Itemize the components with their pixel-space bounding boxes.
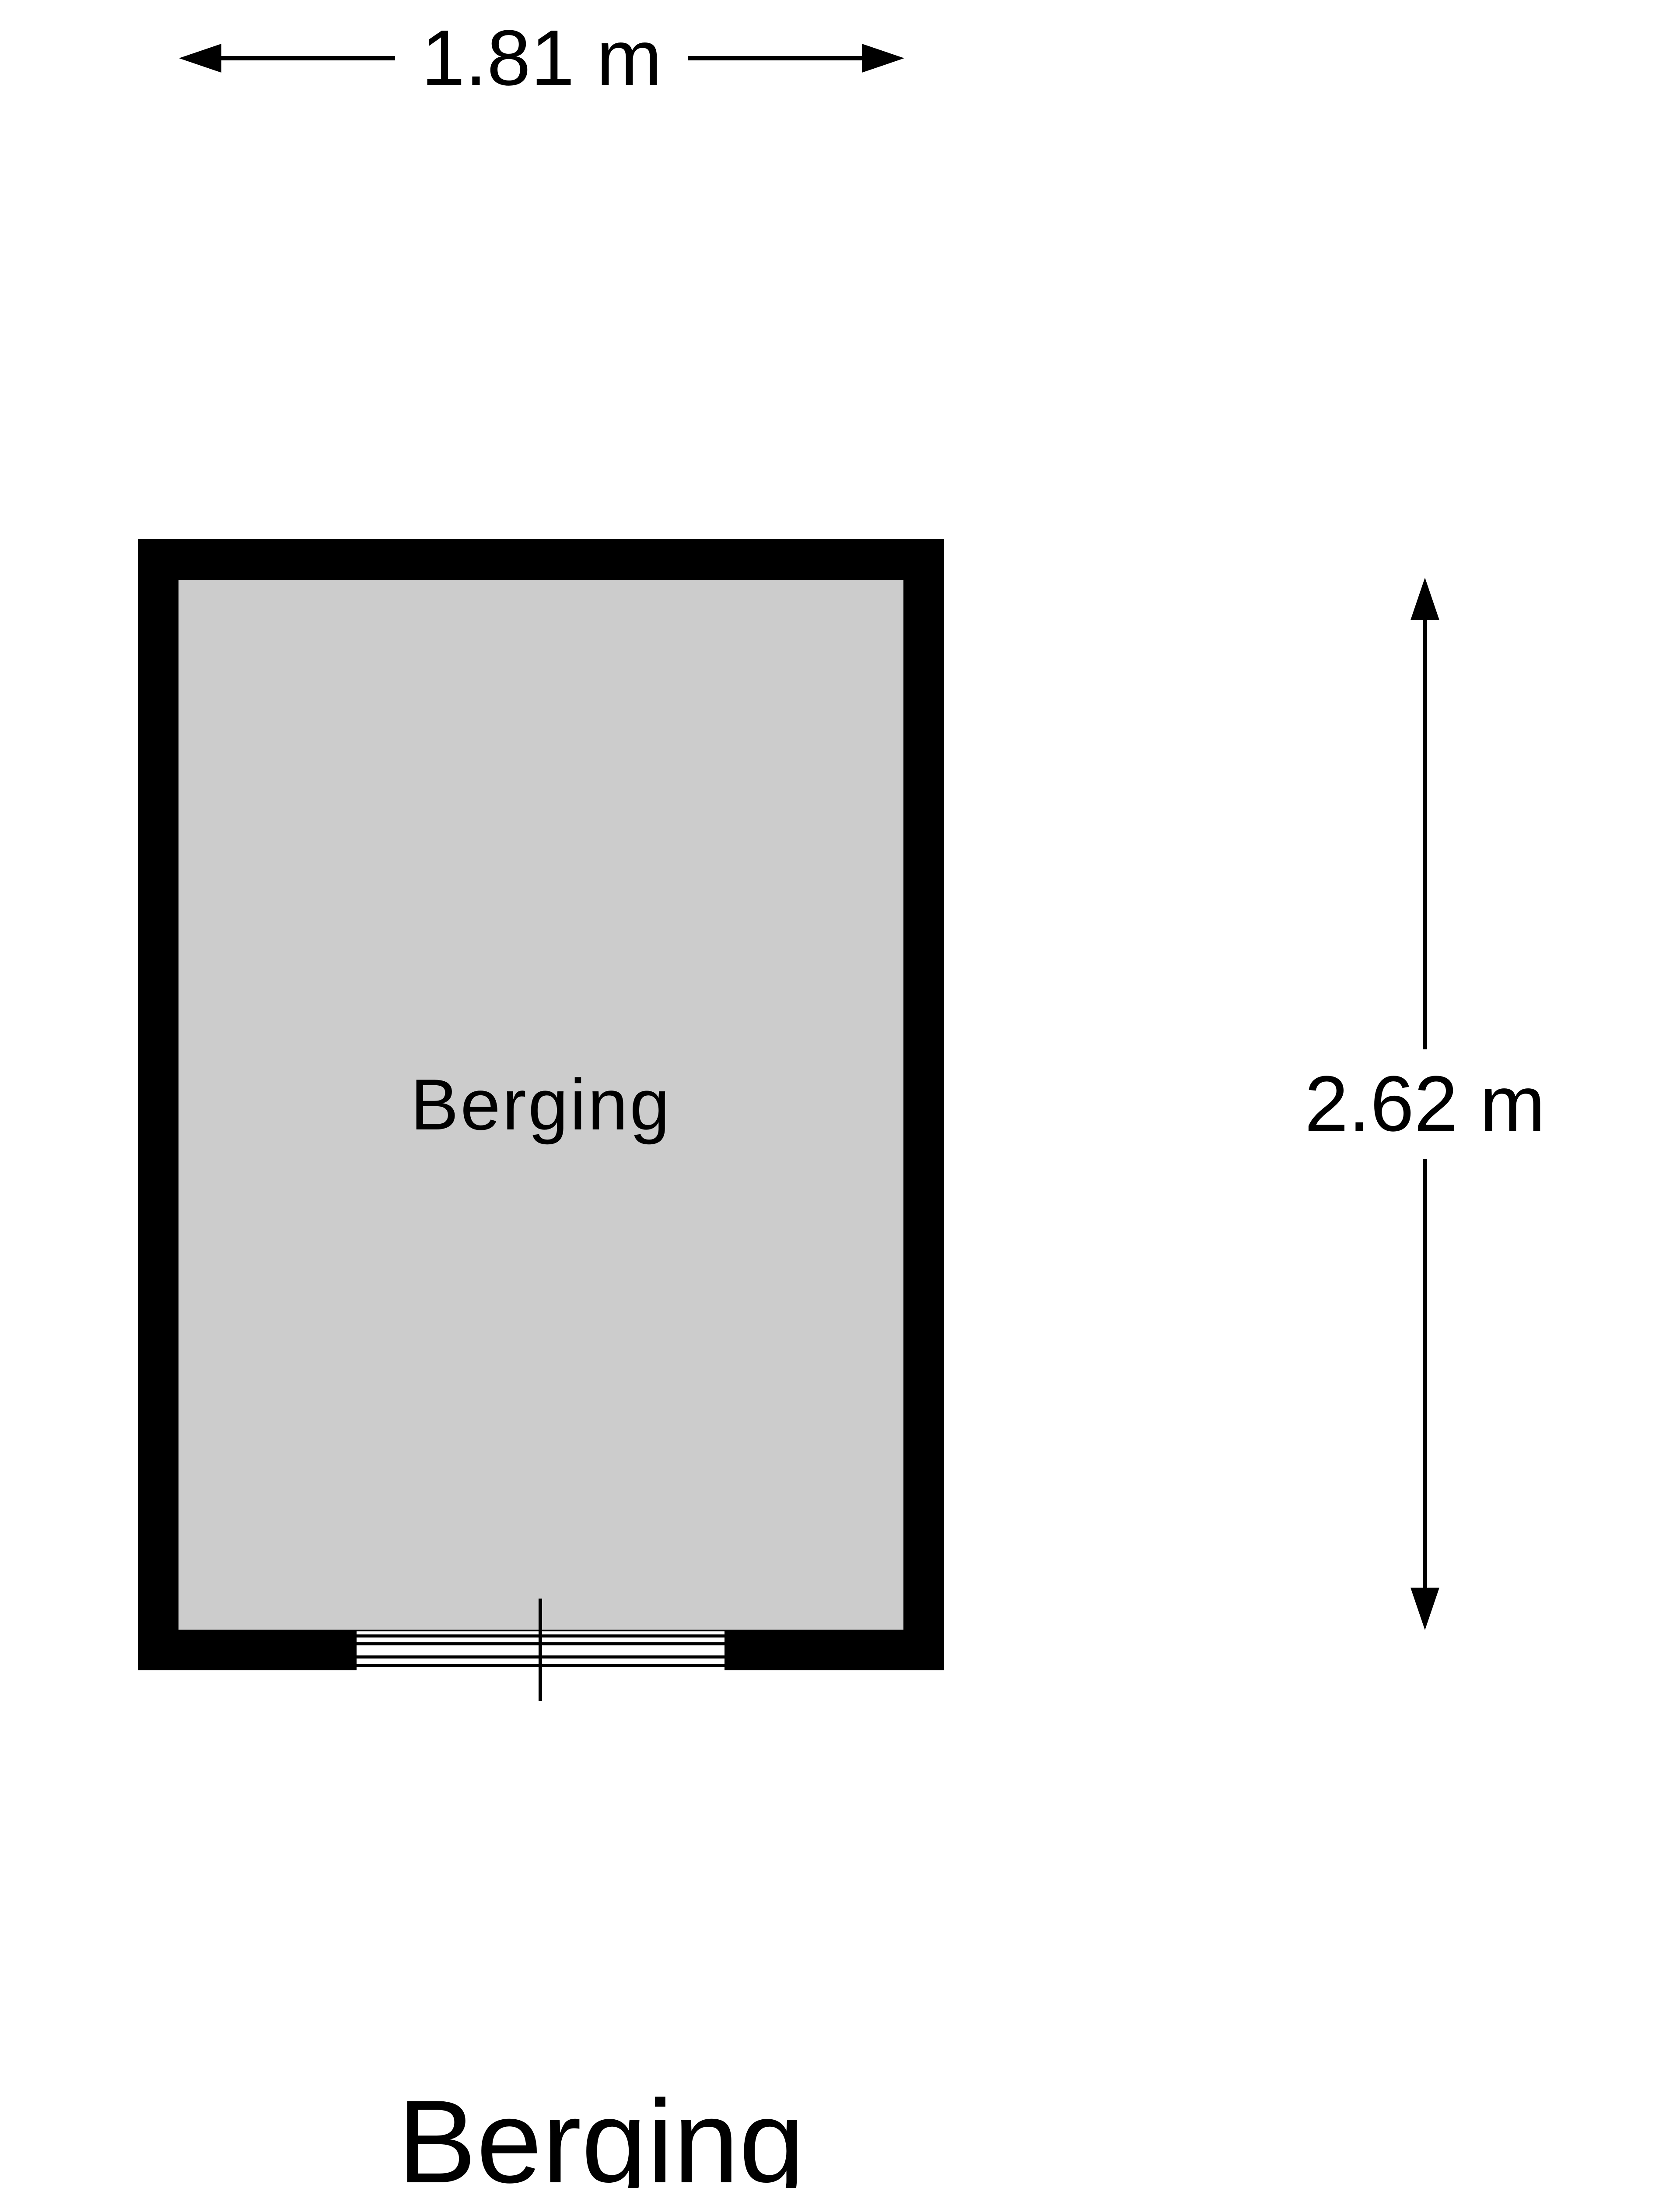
height-dimension: 2.62 m xyxy=(1377,578,1473,1630)
floor-plan-title: Berging xyxy=(398,2083,805,2188)
dimension-arrowhead-right-icon xyxy=(862,44,904,73)
dimension-arrowhead-up-icon xyxy=(1410,578,1439,620)
dimension-line-right-segment xyxy=(688,56,862,60)
floor-plan-page: { "plan": { "title": "Berging", "type": … xyxy=(0,0,1680,2188)
dimension-arrowhead-down-icon xyxy=(1410,1588,1439,1630)
door-center-line xyxy=(539,1599,542,1701)
width-dimension: 1.81 m xyxy=(179,6,904,111)
dimension-line-left-segment xyxy=(221,56,395,60)
width-dimension-label: 1.81 m xyxy=(421,19,662,98)
room-berging: Berging xyxy=(138,539,944,1670)
dimension-line-bottom-segment xyxy=(1423,1159,1427,1588)
height-dimension-label: 2.62 m xyxy=(1305,1065,1545,1143)
dimension-line-top-segment xyxy=(1423,620,1427,1049)
dimension-arrowhead-left-icon xyxy=(179,44,221,73)
room-name-label: Berging xyxy=(410,1069,672,1141)
